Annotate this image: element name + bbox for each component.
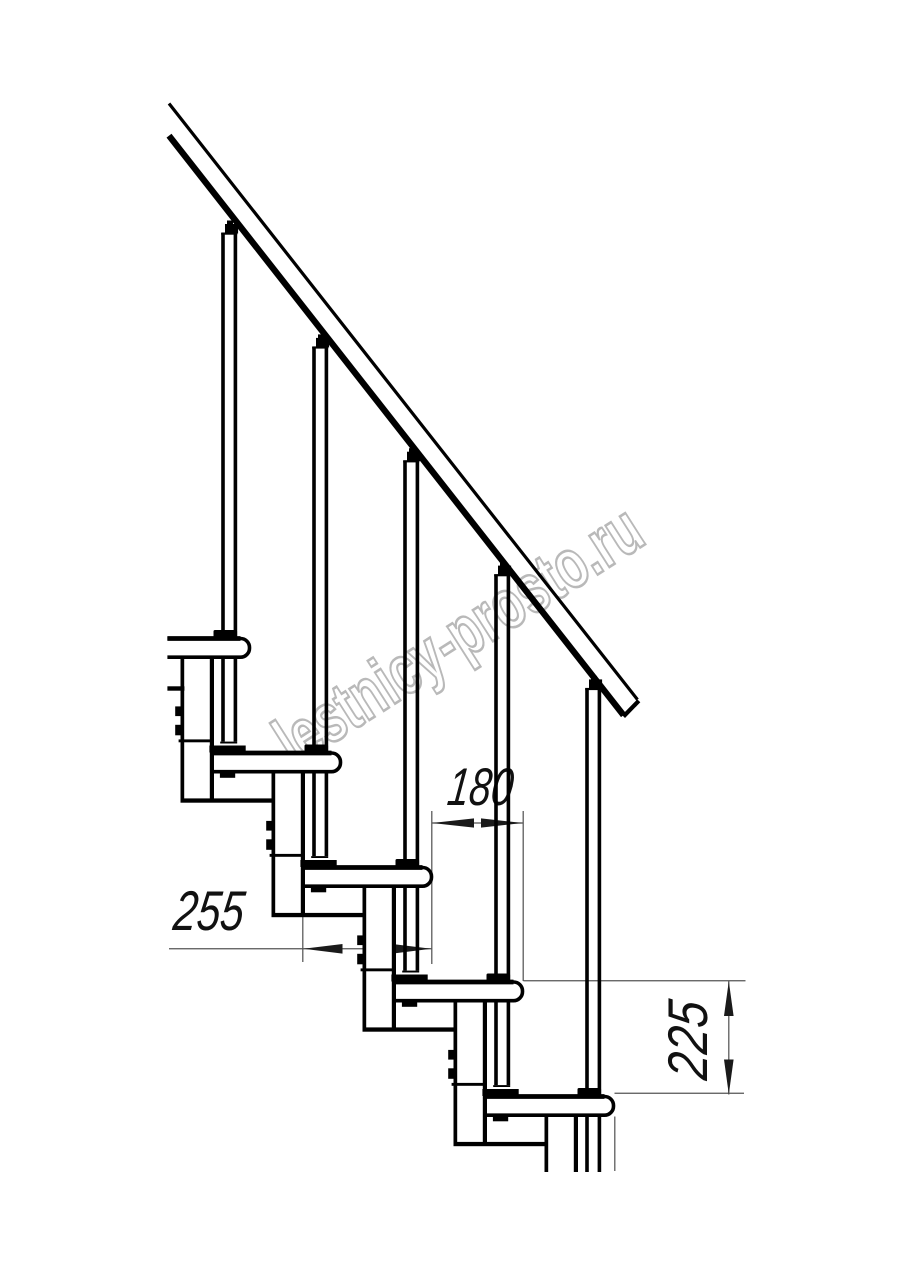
svg-text:255: 255	[170, 879, 249, 942]
svg-text:225: 225	[656, 996, 719, 1083]
svg-text:180: 180	[445, 758, 518, 817]
